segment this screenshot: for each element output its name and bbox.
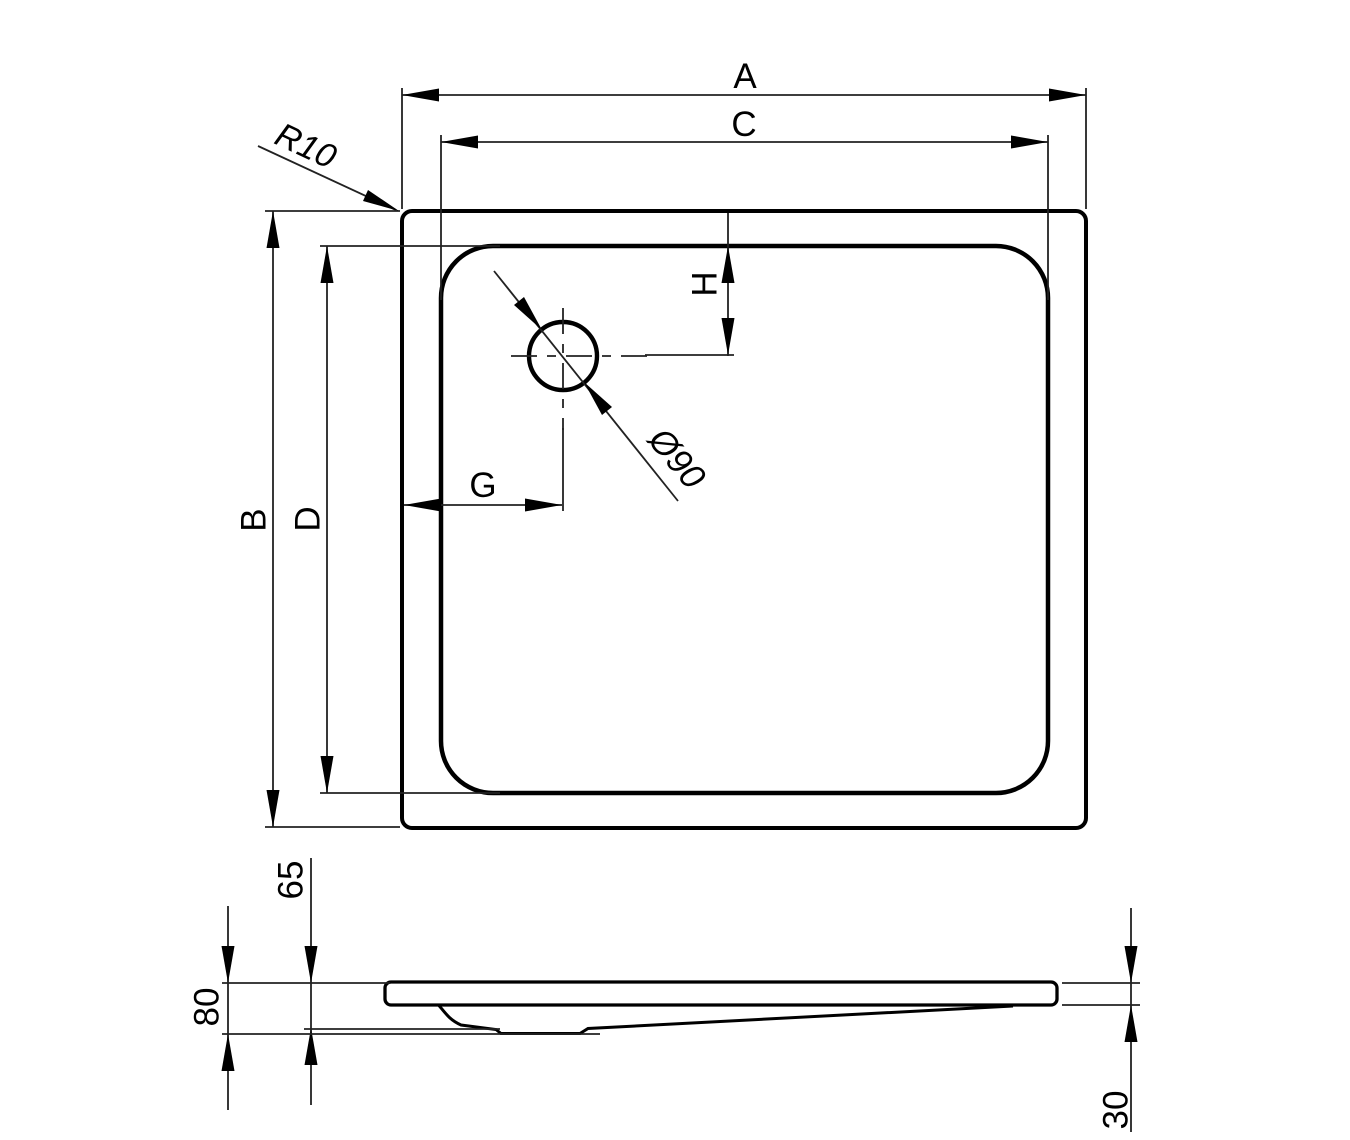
- svg-text:H: H: [686, 271, 725, 296]
- svg-text:G: G: [469, 466, 496, 505]
- svg-text:D: D: [289, 506, 328, 531]
- svg-text:B: B: [235, 508, 274, 531]
- svg-text:30: 30: [1097, 1091, 1136, 1130]
- svg-text:65: 65: [272, 861, 311, 900]
- svg-text:C: C: [731, 105, 756, 144]
- svg-text:A: A: [733, 57, 757, 96]
- svg-text:80: 80: [188, 988, 227, 1027]
